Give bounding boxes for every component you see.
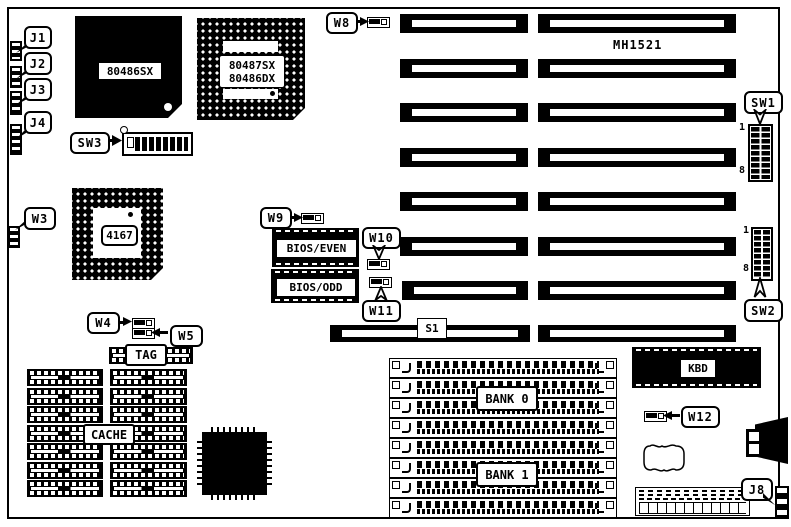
isa-slot-left-1 — [400, 14, 528, 33]
callout-w9: W9 — [260, 207, 292, 229]
isa-slot-left-6 — [400, 237, 528, 256]
chipset-pin1-dot — [128, 212, 133, 217]
j4-pin-header — [10, 124, 22, 155]
j8-bottom-row — [639, 502, 746, 514]
callout-w11-tail — [374, 286, 388, 301]
cache-chip — [110, 480, 187, 497]
cache-chip — [27, 406, 103, 423]
callout-j3: J3 — [24, 78, 52, 101]
callout-sw1-tail — [753, 109, 767, 125]
cache-chip — [27, 388, 103, 405]
callout-sw2-tail — [753, 277, 767, 298]
callout-w12: W12 — [681, 406, 720, 428]
isa-slot-right-8 — [538, 325, 736, 342]
copro-label: 80487SX 80486DX — [219, 55, 285, 88]
j2-pin-header — [10, 66, 22, 88]
copro-label-line1: 80487SX — [229, 59, 275, 72]
cache-label: CACHE — [83, 424, 135, 445]
isa-slot-right-7 — [538, 281, 736, 300]
din-pin-tab-2 — [746, 441, 762, 457]
cache-chip — [27, 480, 103, 497]
isa-slot-left-3 — [400, 103, 528, 122]
isa-slot-left-2 — [400, 59, 528, 78]
motherboard-diagram: MH1521 S1 J1 J2 J3 J4 W3 80486SX 80487SX… — [0, 0, 791, 527]
qfp-left-pins — [197, 441, 202, 486]
simm-socket-1 — [389, 358, 617, 378]
copro-blank-bottom — [223, 89, 278, 99]
callout-w5: W5 — [170, 325, 203, 347]
callout-sw2: SW2 — [744, 299, 783, 322]
cache-chip — [110, 369, 187, 386]
simm-socket-4 — [389, 418, 617, 438]
callout-w11: W11 — [362, 300, 401, 322]
j8-pin-strip — [775, 486, 789, 519]
tag-label: TAG — [125, 344, 167, 366]
isa-slot-right-4 — [538, 148, 736, 167]
sw3-dip-switch — [122, 132, 193, 156]
j8-dashed-line — [639, 498, 746, 500]
cache-chip — [27, 462, 103, 479]
slot-s1-label: S1 — [417, 318, 447, 339]
j8-connector — [635, 487, 750, 516]
cache-chip — [27, 443, 103, 460]
cache-chip — [110, 406, 187, 423]
isa-slot-right-3 — [538, 103, 736, 122]
callout-sw3: SW3 — [70, 132, 110, 154]
sw2-dip-switch — [751, 227, 773, 281]
qfp-right-pins — [267, 441, 272, 486]
sw1-pin1-label: 1 — [739, 122, 745, 133]
isa-slot-right-6 — [538, 237, 736, 256]
component-outline-blob — [641, 442, 687, 474]
callout-w4: W4 — [87, 312, 120, 334]
sw2-pin1-label: 1 — [743, 225, 749, 236]
board-model-label: MH1521 — [613, 38, 662, 52]
simm-socket-8 — [389, 498, 617, 518]
sw1-dip-switch — [748, 124, 773, 182]
cpu-80486sx-label: 80486SX — [98, 62, 162, 80]
simm-socket-5 — [389, 438, 617, 458]
isa-slot-right-1 — [538, 14, 736, 33]
isa-slot-left-7 — [402, 281, 528, 300]
bank1-label: BANK 1 — [476, 462, 538, 487]
sw2-pin8-label: 8 — [743, 263, 749, 274]
kbd-label: KBD — [680, 359, 716, 378]
bios-odd-label: BIOS/ODD — [276, 278, 356, 297]
callout-j1: J1 — [24, 26, 52, 49]
chipset-4167-label: 4167 — [101, 225, 138, 246]
qfp-controller-chip — [202, 432, 267, 495]
w5-jumper — [132, 328, 155, 339]
cache-chip — [110, 443, 187, 460]
w12-jumper — [644, 411, 667, 422]
bank0-label: BANK 0 — [476, 386, 538, 411]
callout-j8: J8 — [741, 478, 773, 501]
copro-blank-top — [223, 41, 278, 52]
callout-w8: W8 — [326, 12, 358, 34]
sw1-pin8-label: 8 — [739, 165, 745, 176]
j8-top-row — [639, 490, 746, 496]
w10-jumper — [367, 259, 390, 270]
callout-j4: J4 — [24, 111, 52, 134]
isa-slot-left-4 — [400, 148, 528, 167]
copro-label-line2: 80486DX — [229, 72, 275, 85]
cache-chip — [110, 462, 187, 479]
w9-jumper — [301, 213, 324, 224]
callout-j2: J2 — [24, 52, 52, 75]
w8-jumper — [367, 17, 390, 28]
isa-slot-right-5 — [538, 192, 736, 211]
cpu-pin1-dot — [164, 103, 172, 111]
j3-pin-header — [10, 91, 22, 115]
callout-w10-tail — [372, 245, 386, 260]
j1-pin-header — [10, 41, 22, 61]
isa-slot-right-2 — [538, 59, 736, 78]
cache-chip — [110, 388, 187, 405]
copro-pin1-dot — [270, 91, 275, 96]
bios-even-label: BIOS/EVEN — [276, 239, 357, 258]
w3-pin-header — [8, 226, 20, 248]
cache-chip — [27, 369, 103, 386]
isa-slot-left-5 — [400, 192, 528, 211]
callout-w3: W3 — [24, 207, 56, 230]
sw3-marker-dot — [120, 126, 128, 134]
